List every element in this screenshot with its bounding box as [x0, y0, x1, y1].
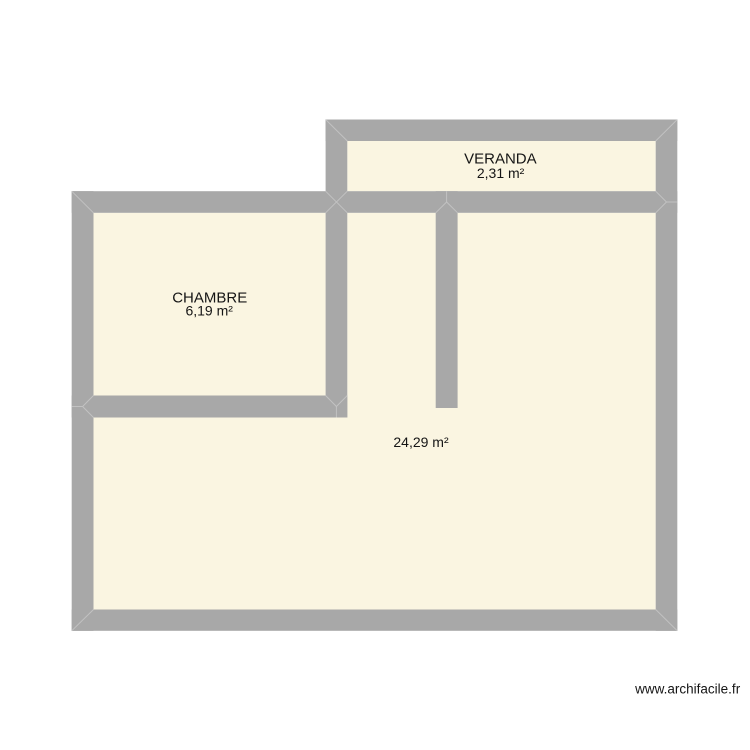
- svg-text:2,31 m²: 2,31 m²: [477, 165, 525, 181]
- svg-text:6,19 m²: 6,19 m²: [185, 303, 233, 319]
- svg-text:24,29 m²: 24,29 m²: [393, 434, 449, 450]
- svg-text:www.archifacile.fr: www.archifacile.fr: [634, 682, 741, 697]
